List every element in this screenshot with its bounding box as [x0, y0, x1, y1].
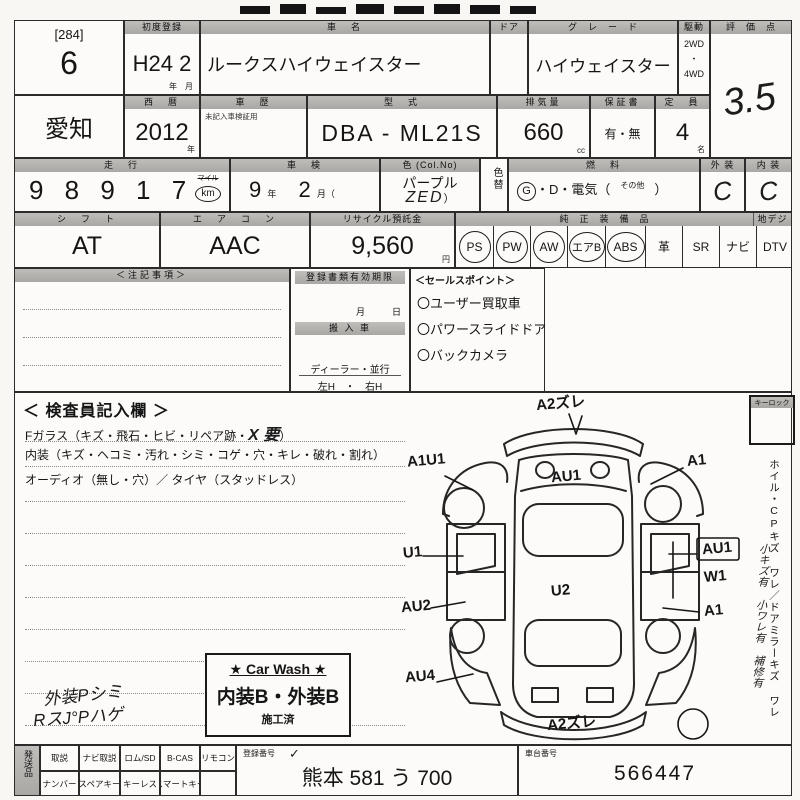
- drive-2wd: 2WD: [679, 37, 709, 52]
- accessory-navi-manual-label: ナビ取説: [82, 752, 116, 764]
- damage-diagram: A2ズレ A1U1 AU1 A1 U1 AU1 W1 U2 AU2 A1 AU4…: [401, 396, 746, 744]
- mileage-unit-km: km: [195, 186, 221, 202]
- drive-label: 駆動: [679, 21, 709, 34]
- shaken-year-unit: 年: [267, 189, 276, 199]
- color-cell: 色 (Col.No) パープル ZED）: [380, 158, 480, 212]
- warranty-value: 有・無: [591, 109, 654, 157]
- damage-mark: A1: [686, 451, 707, 470]
- drive-4wd: 4WD: [679, 67, 709, 82]
- sales-points-cell: ＜セールスポイント＞ 〇ユーザー買取車 〇パワースライドドア 〇バックカメラ: [410, 268, 545, 392]
- drive-dot: ・: [679, 52, 709, 67]
- damage-mark: A2ズレ: [535, 390, 586, 415]
- color-change-label: 色替: [489, 167, 504, 191]
- equipment-label-dtv: 地デジ: [753, 213, 791, 226]
- equip-sr: SR: [682, 226, 719, 267]
- shift-value: AT: [15, 226, 159, 267]
- color-label: 色 (Col.No): [381, 159, 479, 172]
- damage-mark: AU1: [550, 467, 581, 487]
- car-name-label: 車 名: [201, 21, 489, 34]
- equipment-cell: 純 正 装 備 品 地デジ PS PW AW エアB ABS 革 SR ナビ D…: [455, 212, 792, 268]
- accessory-rom-sd: ロム/SD: [120, 745, 160, 771]
- equip-pw: PW: [496, 231, 528, 263]
- shaken-month: 2: [299, 177, 311, 202]
- recycle-fee-cell: リサイクル預託金 9,560 円: [310, 212, 455, 268]
- mileage-cell: 走 行 9 8 9 1 7 マイル km: [14, 158, 230, 212]
- car-wash-title: ★ Car Wash ★: [207, 661, 349, 678]
- accessory-smart-key-label: スマートキー: [160, 778, 200, 790]
- first-registration-cell: 初度登録 H24 2 年 月: [124, 20, 200, 95]
- lot-bracket: [284]: [15, 27, 123, 42]
- sales-points-label: ＜セールスポイント＞: [415, 272, 515, 287]
- registration-doc-cell: 登録書類有効期限 月 日 搬 入 車 ディーラー・並行 左H ・ 右H: [290, 268, 410, 392]
- registration-number-label: 登録番号: [243, 748, 275, 759]
- notes-label: ＜注記事項＞: [15, 269, 289, 282]
- chassis-number-value: 566447: [519, 762, 791, 786]
- color-paren: ）: [444, 193, 455, 205]
- fuel-gasoline: G: [517, 182, 536, 201]
- registration-check-mark: ✓: [289, 746, 300, 762]
- shaken-label: 車 検: [231, 159, 379, 172]
- damage-mark: A2ズレ: [546, 710, 597, 735]
- accessory-manual: 取説: [40, 745, 79, 771]
- equip-aw: AW: [533, 231, 565, 263]
- damage-mark: W1: [703, 567, 727, 586]
- grade-value: ハイウェイスター: [529, 34, 677, 94]
- bottom-side-label-cell: 発送品: [14, 745, 40, 796]
- sales-point-1: 〇ユーザー買取車: [417, 291, 546, 317]
- shift-label: シ フ ト: [15, 213, 159, 226]
- accessory-bcas: B-CAS: [160, 745, 200, 771]
- accessory-bcas-label: B-CAS: [167, 753, 193, 763]
- car-name-value: ルークスハイウェイスター: [201, 34, 489, 94]
- damage-mark: AU1: [701, 539, 732, 559]
- inspection-area: ＜ 検査員記入欄 ＞ Fガラス（キズ・飛石・ヒビ・リペア跡・X 要） 内装（キズ…: [14, 392, 792, 745]
- import-options: ディーラー・並行: [291, 361, 409, 376]
- mileage-label: 走 行: [15, 159, 229, 172]
- car-name-cell: 車 名 ルークスハイウェイスター: [200, 20, 490, 95]
- registration-number-cell: 登録番号 ✓ 熊本 581 う 700: [236, 745, 518, 796]
- hand-note-2: RスJ°Pハゲ: [32, 700, 123, 731]
- score-cell: 評 価 点 3.5: [710, 20, 792, 158]
- accessory-spare-key: スペアキー: [79, 771, 120, 796]
- prefecture-cell: 愛知: [14, 95, 124, 158]
- chassis-number-cell: 車台番号 566447: [518, 745, 792, 796]
- year-cell: 西 暦 2012 年: [124, 95, 200, 158]
- fuel-options: ・D・電気（: [536, 182, 610, 197]
- door-cell: ドア: [490, 20, 528, 95]
- recycle-fee-unit: 円: [442, 254, 450, 265]
- sales-point-2: 〇パワースライドドア: [417, 317, 546, 343]
- registration-number-value: 熊本 581 う 700: [237, 762, 517, 792]
- equip-navi-label: ナビ: [726, 238, 750, 255]
- aircon-label: エ ア コ ン: [161, 213, 309, 226]
- mid-blank-area: [545, 268, 792, 392]
- interior-grade: C: [744, 170, 793, 213]
- equip-leather-label: 革: [658, 238, 670, 255]
- equip-dtv-label: DTV: [763, 240, 787, 254]
- equip-ps: PS: [459, 231, 491, 263]
- car-wash-done: 施工済: [207, 711, 349, 727]
- grade-cell: グ レ ー ド ハイウェイスター: [528, 20, 678, 95]
- displacement-value: 660: [498, 109, 589, 157]
- handle-options: 左H ・ 右H: [291, 378, 409, 393]
- shift-cell: シ フ ト AT: [14, 212, 160, 268]
- accessory-keyless-label: キーレス: [123, 778, 157, 790]
- lot-number: 6: [15, 45, 123, 82]
- fuel-label: 燃 料: [509, 159, 699, 172]
- interior-grade-cell: 内 装 C: [745, 158, 792, 212]
- capacity-cell: 定 員 4 名: [655, 95, 710, 158]
- accessory-blank: [200, 771, 236, 796]
- audio-tire-line: オーディオ（無し・穴）／ タイヤ（スタッドレス）: [25, 471, 303, 488]
- warranty-label: 保証書: [591, 96, 654, 109]
- accessory-spare-key-label: スペアキー: [79, 778, 120, 790]
- interior-line: 内装（キズ・ヘコミ・汚れ・シミ・コゲ・穴・キレ・破れ・割れ）: [25, 446, 385, 463]
- car-wash-grades: 内装B・外装B: [207, 682, 349, 709]
- grade-label: グ レ ー ド: [529, 21, 677, 34]
- recycle-fee-value: 9,560: [311, 226, 454, 267]
- bottom-side-label: 発送品: [22, 750, 35, 777]
- keylock-box: キーロック: [749, 395, 795, 445]
- sheet: [284] 6 初度登録 H24 2 年 月 車 名 ルークスハイウェイスター …: [14, 20, 792, 796]
- displacement-label: 排気量: [498, 96, 589, 109]
- warranty-cell: 保証書 有・無: [590, 95, 655, 158]
- history-cell: 車 歴 未記入車検証用: [200, 95, 307, 158]
- sales-point-3: 〇バックカメラ: [417, 343, 546, 369]
- equip-navi: ナビ: [719, 226, 756, 267]
- door-label: ドア: [491, 21, 527, 34]
- regdoc-label: 登録書類有効期限: [295, 271, 405, 284]
- lot-cell: [284] 6: [14, 20, 124, 95]
- history-label: 車 歴: [201, 96, 306, 109]
- first-registration-unit: 年 月: [169, 81, 193, 92]
- car-top-view-drawing: [401, 396, 746, 744]
- keylock-label: キーロック: [751, 397, 793, 408]
- capacity-label: 定 員: [656, 96, 709, 109]
- recycle-fee-label: リサイクル預託金: [311, 213, 454, 226]
- model-cell: 型 式 DBA - ML21S: [307, 95, 497, 158]
- aircon-value: AAC: [161, 226, 309, 267]
- accessory-remote-label: リモコン: [201, 752, 235, 764]
- accessory-remote: リモコン: [200, 745, 236, 771]
- accessory-keyless: キーレス: [120, 771, 160, 796]
- color-code-handwritten: ZED: [406, 189, 444, 206]
- accessory-manual-label: 取説: [51, 752, 68, 764]
- regdoc-units: 月 日: [356, 305, 401, 318]
- notes-cell: ＜注記事項＞: [14, 268, 290, 392]
- equip-dtv: DTV: [756, 226, 793, 267]
- mileage-value: 9 8 9 1 7: [29, 175, 193, 206]
- fuel-cell: 燃 料 G・D・電気（その他）: [508, 158, 700, 212]
- damage-mark: AU4: [404, 667, 435, 687]
- prefecture-value: 愛知: [15, 96, 123, 157]
- fuel-close: ）: [654, 182, 667, 197]
- chassis-number-label: 車台番号: [525, 748, 557, 759]
- model-value: DBA - ML21S: [308, 109, 496, 157]
- displacement-unit: cc: [577, 146, 585, 155]
- score-value: 3.5: [720, 76, 778, 126]
- drive-cell: 駆動 2WD ・ 4WD: [678, 20, 710, 95]
- equip-leather: 革: [645, 226, 682, 267]
- year-unit: 年: [187, 144, 195, 155]
- exterior-grade-cell: 外 装 C: [700, 158, 745, 212]
- damage-mark: A1U1: [406, 450, 446, 470]
- accessory-smart-key: スマートキー: [160, 771, 200, 796]
- accessory-rom-sd-label: ロム/SD: [124, 752, 155, 764]
- displacement-cell: 排気量 660 cc: [497, 95, 590, 158]
- shaken-year: 9: [249, 177, 261, 202]
- equip-sr-label: SR: [693, 240, 710, 254]
- aircon-cell: エ ア コ ン AAC: [160, 212, 310, 268]
- car-wash-stamp: ★ Car Wash ★ 内装B・外装B 施工済: [205, 653, 351, 737]
- history-note: 未記入車検証用: [205, 111, 258, 122]
- exterior-grade: C: [699, 170, 746, 213]
- capacity-unit: 名: [697, 144, 705, 155]
- clipped-title: [235, 2, 565, 14]
- equip-abs: ABS: [607, 232, 645, 262]
- auction-sheet-scan: [284] 6 初度登録 H24 2 年 月 車 名 ルークスハイウェイスター …: [0, 0, 800, 800]
- shaken-cell: 車 検 9 年 2 月（: [230, 158, 380, 212]
- accessory-number-plate-label: ナンバー: [42, 778, 76, 790]
- accessory-navi-manual: ナビ取説: [79, 745, 120, 771]
- mileage-unit-mile: マイル: [195, 173, 221, 183]
- accessory-number-plate: ナンバー: [40, 771, 79, 796]
- model-label: 型 式: [308, 96, 496, 109]
- import-label: 搬 入 車: [295, 322, 405, 335]
- damage-mark: AU2: [400, 597, 431, 617]
- shaken-month-unit: 月（: [317, 189, 335, 199]
- year-label: 西 暦: [125, 96, 199, 109]
- color-change-cell: 色替: [480, 158, 508, 212]
- equipment-label: 純 正 装 備 品: [456, 213, 753, 226]
- equip-airbag: エアB: [569, 232, 605, 262]
- first-registration-label: 初度登録: [125, 21, 199, 34]
- damage-mark: A1: [703, 601, 724, 620]
- damage-mark: U1: [402, 543, 423, 562]
- inspector-title: ＜ 検査員記入欄 ＞: [23, 397, 170, 421]
- fuel-other: その他: [610, 181, 654, 190]
- score-label: 評 価 点: [711, 21, 791, 34]
- damage-mark: U2: [550, 581, 571, 600]
